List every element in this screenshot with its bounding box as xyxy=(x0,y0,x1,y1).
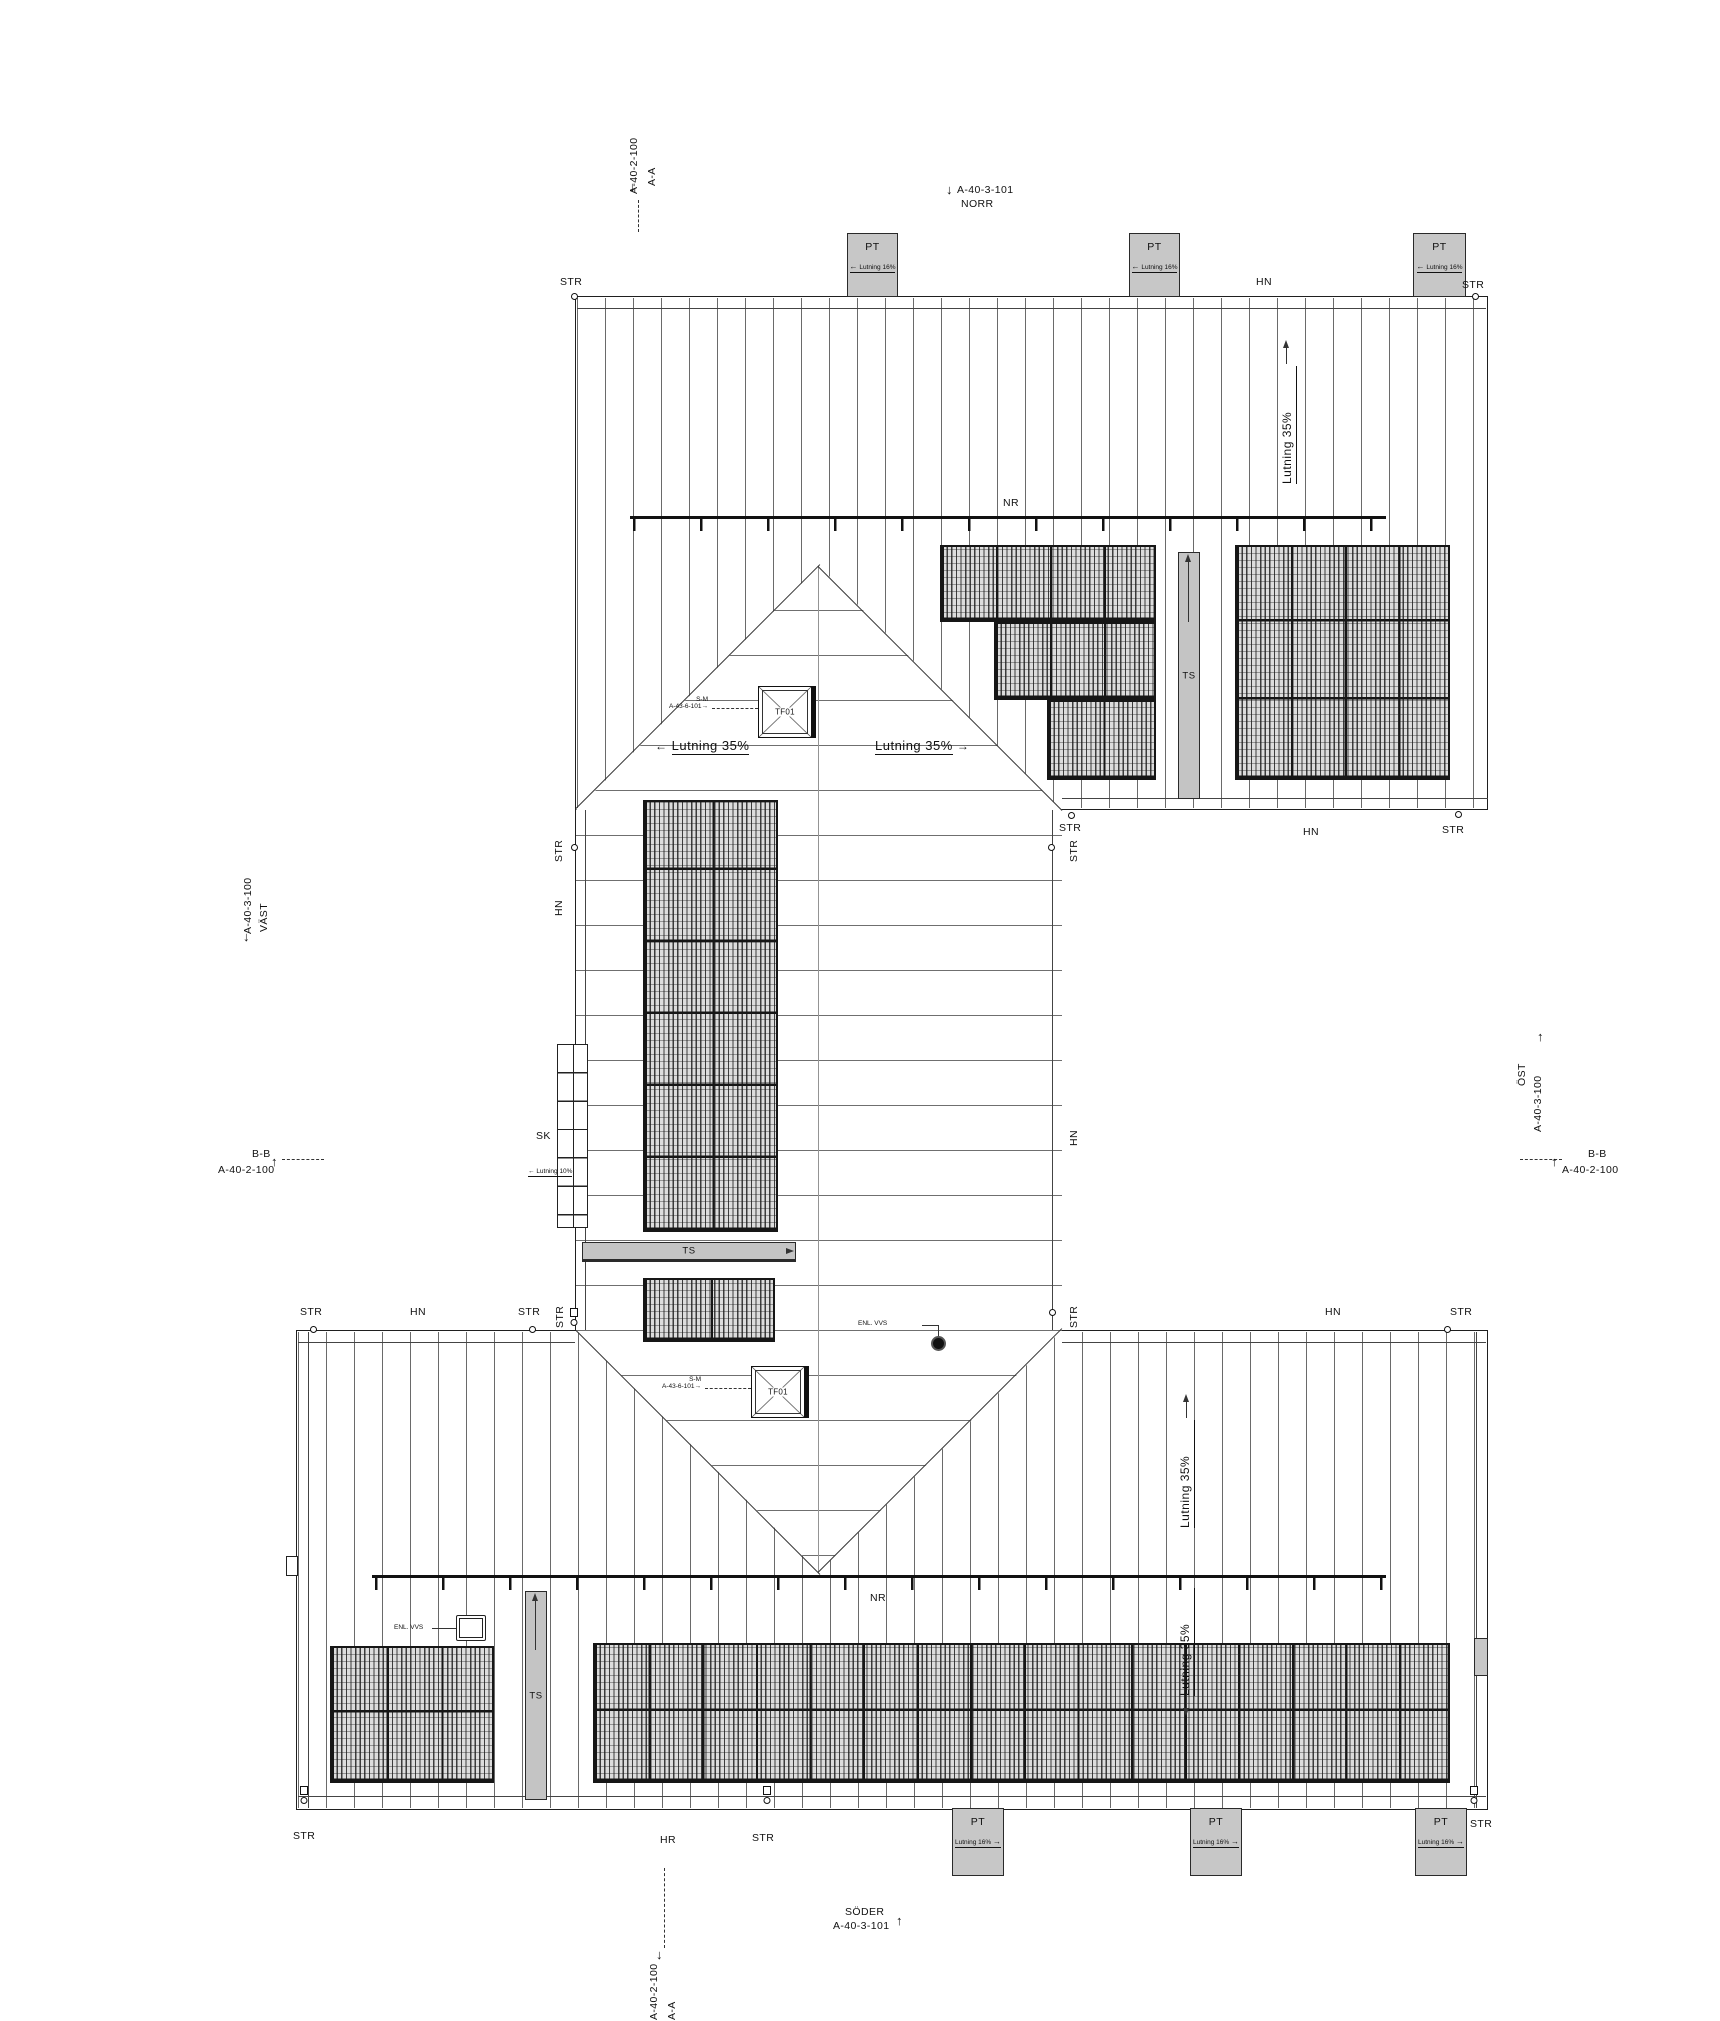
skylight-tf01-south: TF01 xyxy=(751,1366,809,1418)
arrow-up-icon: ↑ xyxy=(896,1914,903,1929)
pt-terrace-north-2: PT ← Lutning 16% xyxy=(1129,233,1180,297)
walkway-ts-north: TS xyxy=(1178,552,1200,799)
elev-marker-north-name: NORR xyxy=(961,198,994,210)
arrow-down-icon: ↓ xyxy=(243,930,250,945)
section-marker-aa-bottom-name: A-A xyxy=(666,1988,678,2020)
solar-panel-array xyxy=(1047,700,1156,780)
skylight-ref: S-MA-43-6-101→ xyxy=(648,696,708,711)
section-marker-bb-left-name: B-B xyxy=(252,1148,271,1160)
snow-bracket-icon xyxy=(570,1308,578,1317)
snow-rail-brackets xyxy=(633,519,1386,531)
elev-marker-south-name: SÖDER xyxy=(845,1906,884,1918)
tf01-label: TF01 xyxy=(773,708,797,717)
sk-label: SK xyxy=(536,1130,551,1142)
pt-terrace-south-2: PT Lutning 16% → xyxy=(1190,1808,1242,1876)
elev-marker-north-ref: A-40-3-101 xyxy=(957,184,1014,196)
solar-panel-array xyxy=(1235,545,1450,780)
solar-panel-array xyxy=(994,622,1156,700)
pt-label: PT xyxy=(1130,241,1179,253)
arrow-up-icon: ↑ xyxy=(1551,1155,1558,1170)
pt-label: PT xyxy=(1191,1816,1241,1828)
slope-label-south-upper: Lutning 35% xyxy=(1178,1420,1195,1528)
middle-wing-ridge-line xyxy=(818,566,819,1572)
access-ladder-sk xyxy=(557,1044,588,1228)
skylight-leader-line xyxy=(705,1388,751,1389)
str-label: STR xyxy=(1462,279,1484,291)
slope-label-south-lower: Lutning 35% xyxy=(1178,1588,1195,1696)
str-label: STR xyxy=(560,276,582,288)
eave-inner-line xyxy=(1062,798,1488,799)
pt-slope-label: Lutning 16% → xyxy=(955,1837,1001,1848)
pt-slope-label: Lutning 16% → xyxy=(1193,1837,1239,1848)
fixpoint-circle xyxy=(1049,1309,1056,1316)
skylight-leader-line xyxy=(712,708,758,709)
arrow-up-icon xyxy=(1183,1394,1189,1402)
section-marker-bb-right-name: B-B xyxy=(1588,1148,1607,1160)
slope-label-east: Lutning 35% → xyxy=(875,738,969,753)
pt-label: PT xyxy=(1414,241,1465,253)
tf01-label: TF01 xyxy=(766,1388,790,1397)
fixpoint-circle xyxy=(310,1326,317,1333)
solar-panel-array xyxy=(643,1278,775,1342)
vvs-vent xyxy=(933,1338,944,1349)
roof-hatch-gray xyxy=(1474,1638,1488,1676)
eave-inner-line xyxy=(308,1332,309,1808)
solar-panel-array xyxy=(330,1646,494,1783)
fixpoint-circle xyxy=(1048,844,1055,851)
pt-label: PT xyxy=(1416,1816,1466,1828)
fixpoint-circle xyxy=(1455,811,1462,818)
arrow-up-icon xyxy=(1283,340,1289,348)
ts-arrow-line xyxy=(1188,562,1189,622)
hn-label: HN xyxy=(553,888,565,916)
pt-terrace-north-3: PT ← Lutning 16% xyxy=(1413,233,1466,297)
str-label: STR xyxy=(553,826,565,862)
fixpoint-circle xyxy=(1444,1326,1451,1333)
eave-inner-line xyxy=(1062,1342,1486,1343)
arrow-down-icon: ↓ xyxy=(946,183,953,198)
section-marker-aa-bottom-ref: A-40-2-100 xyxy=(648,1962,660,2020)
arrow-left-icon: ← xyxy=(655,739,668,753)
vvs-leader xyxy=(938,1325,939,1338)
skylight-ref: S-MA-43-6-101→ xyxy=(641,1376,701,1391)
elev-marker-south-ref: A-40-3-101 xyxy=(833,1920,890,1932)
hr-label: HR xyxy=(660,1834,676,1846)
pt-slope-label: ← Lutning 16% xyxy=(1417,262,1463,273)
eave-inner-line xyxy=(1052,810,1053,1330)
elev-marker-east-ref: A-40-3-100 xyxy=(1532,1046,1544,1132)
section-line xyxy=(282,1159,324,1160)
pt-slope-label: Lutning 16% → xyxy=(1418,1837,1464,1848)
slope-arrow-line xyxy=(1186,1694,1187,1708)
sk-slope-label: ← Lutning 10% xyxy=(528,1168,572,1177)
vvs-leader xyxy=(432,1628,456,1629)
section-line xyxy=(638,200,639,232)
slope-arrow-line xyxy=(1286,348,1287,364)
pt-slope-label: ← Lutning 16% xyxy=(850,262,896,273)
solar-panel-array xyxy=(940,545,1156,622)
ts-label: TS xyxy=(529,1690,542,1701)
snow-bracket-icon xyxy=(300,1786,308,1795)
str-label: STR xyxy=(554,1292,566,1328)
vvs-label: ENL. VVS xyxy=(858,1320,887,1327)
arrow-down-icon: ↓ xyxy=(656,1948,663,1963)
str-label: STR xyxy=(300,1306,322,1318)
arrow-down-icon xyxy=(1183,1708,1189,1716)
section-marker-aa-top-name: A-A xyxy=(646,140,658,186)
vvs-leader xyxy=(922,1325,938,1326)
ts-label: TS xyxy=(1182,670,1195,681)
nr-label: NR xyxy=(1003,497,1019,509)
elev-marker-west-ref: A-40-3-100 xyxy=(242,848,254,934)
pt-terrace-south-1: PT Lutning 16% → xyxy=(952,1808,1004,1876)
snow-bracket-icon xyxy=(1470,1786,1478,1795)
skylight-tf01-north: TF01 xyxy=(758,686,816,738)
hn-label: HN xyxy=(1325,1306,1341,1318)
slope-arrow-line xyxy=(1186,1402,1187,1418)
str-label: STR xyxy=(1450,1306,1472,1318)
arrow-right-icon xyxy=(786,1248,794,1254)
section-line xyxy=(664,1868,665,1948)
hn-label: HN xyxy=(410,1306,426,1318)
eave-inner-line xyxy=(1476,1332,1477,1808)
slope-label-north-wing: Lutning 35% xyxy=(1280,366,1297,484)
vvs-label: ENL. VVS xyxy=(394,1624,423,1631)
str-label: STR xyxy=(518,1306,540,1318)
hn-label: HN xyxy=(1068,1118,1080,1146)
str-label: STR xyxy=(1470,1818,1492,1830)
eave-inner-line xyxy=(298,1342,575,1343)
pt-label: PT xyxy=(953,1816,1003,1828)
str-label: STR xyxy=(1068,826,1080,862)
nr-label: NR xyxy=(870,1592,886,1604)
arrow-up-icon: ↑ xyxy=(1537,1030,1544,1045)
roof-hatch-detail xyxy=(286,1556,298,1576)
fixpoint-circle xyxy=(1472,293,1479,300)
pt-slope-label: ← Lutning 16% xyxy=(1132,262,1178,273)
section-marker-bb-right-ref: A-40-2-100 xyxy=(1562,1164,1619,1176)
pt-terrace-south-3: PT Lutning 16% → xyxy=(1415,1808,1467,1876)
ts-label: TS xyxy=(682,1246,695,1257)
hn-label: HN xyxy=(1303,826,1319,838)
str-label: STR xyxy=(293,1830,315,1842)
str-label: STR xyxy=(1442,824,1464,836)
section-marker-bb-left-ref: A-40-2-100 xyxy=(218,1164,275,1176)
eave-inner-line xyxy=(577,308,1486,309)
solar-panel-array xyxy=(593,1643,1450,1783)
arrow-up-icon xyxy=(532,1593,538,1601)
walkway-ts-south: TS xyxy=(525,1591,547,1800)
fixpoint-circle xyxy=(571,844,578,851)
arrow-down-icon: ↓ xyxy=(629,180,636,195)
elev-marker-east-name: ÖST xyxy=(1516,1046,1528,1086)
pt-terrace-north-1: PT ← Lutning 16% xyxy=(847,233,898,297)
arrow-right-icon: → xyxy=(957,739,970,753)
str-label: STR xyxy=(1068,1292,1080,1328)
solar-panel-array xyxy=(643,800,778,1232)
slope-label-west: ← Lutning 35% xyxy=(655,738,749,753)
ts-arrow-line xyxy=(535,1600,536,1650)
pt-label: PT xyxy=(848,241,897,253)
vvs-vent-frame xyxy=(456,1615,486,1641)
hn-label: HN xyxy=(1256,276,1272,288)
arrow-up-icon xyxy=(1185,554,1191,562)
fixpoint-circle xyxy=(1068,812,1075,819)
roof-plan-sheet: TS TS TS NR NR PT ← Lutning 16% PT ← Lut… xyxy=(0,0,1720,2021)
elev-marker-west-name: VÄST xyxy=(258,886,270,932)
str-label: STR xyxy=(752,1832,774,1844)
fixpoint-circle xyxy=(529,1326,536,1333)
snow-bracket-icon xyxy=(763,1786,771,1795)
walkway-ts-middle: TS xyxy=(582,1242,796,1262)
fixpoint-circle xyxy=(571,293,578,300)
eave-inner-line xyxy=(298,1796,1486,1797)
snow-rail-brackets xyxy=(375,1578,1386,1590)
